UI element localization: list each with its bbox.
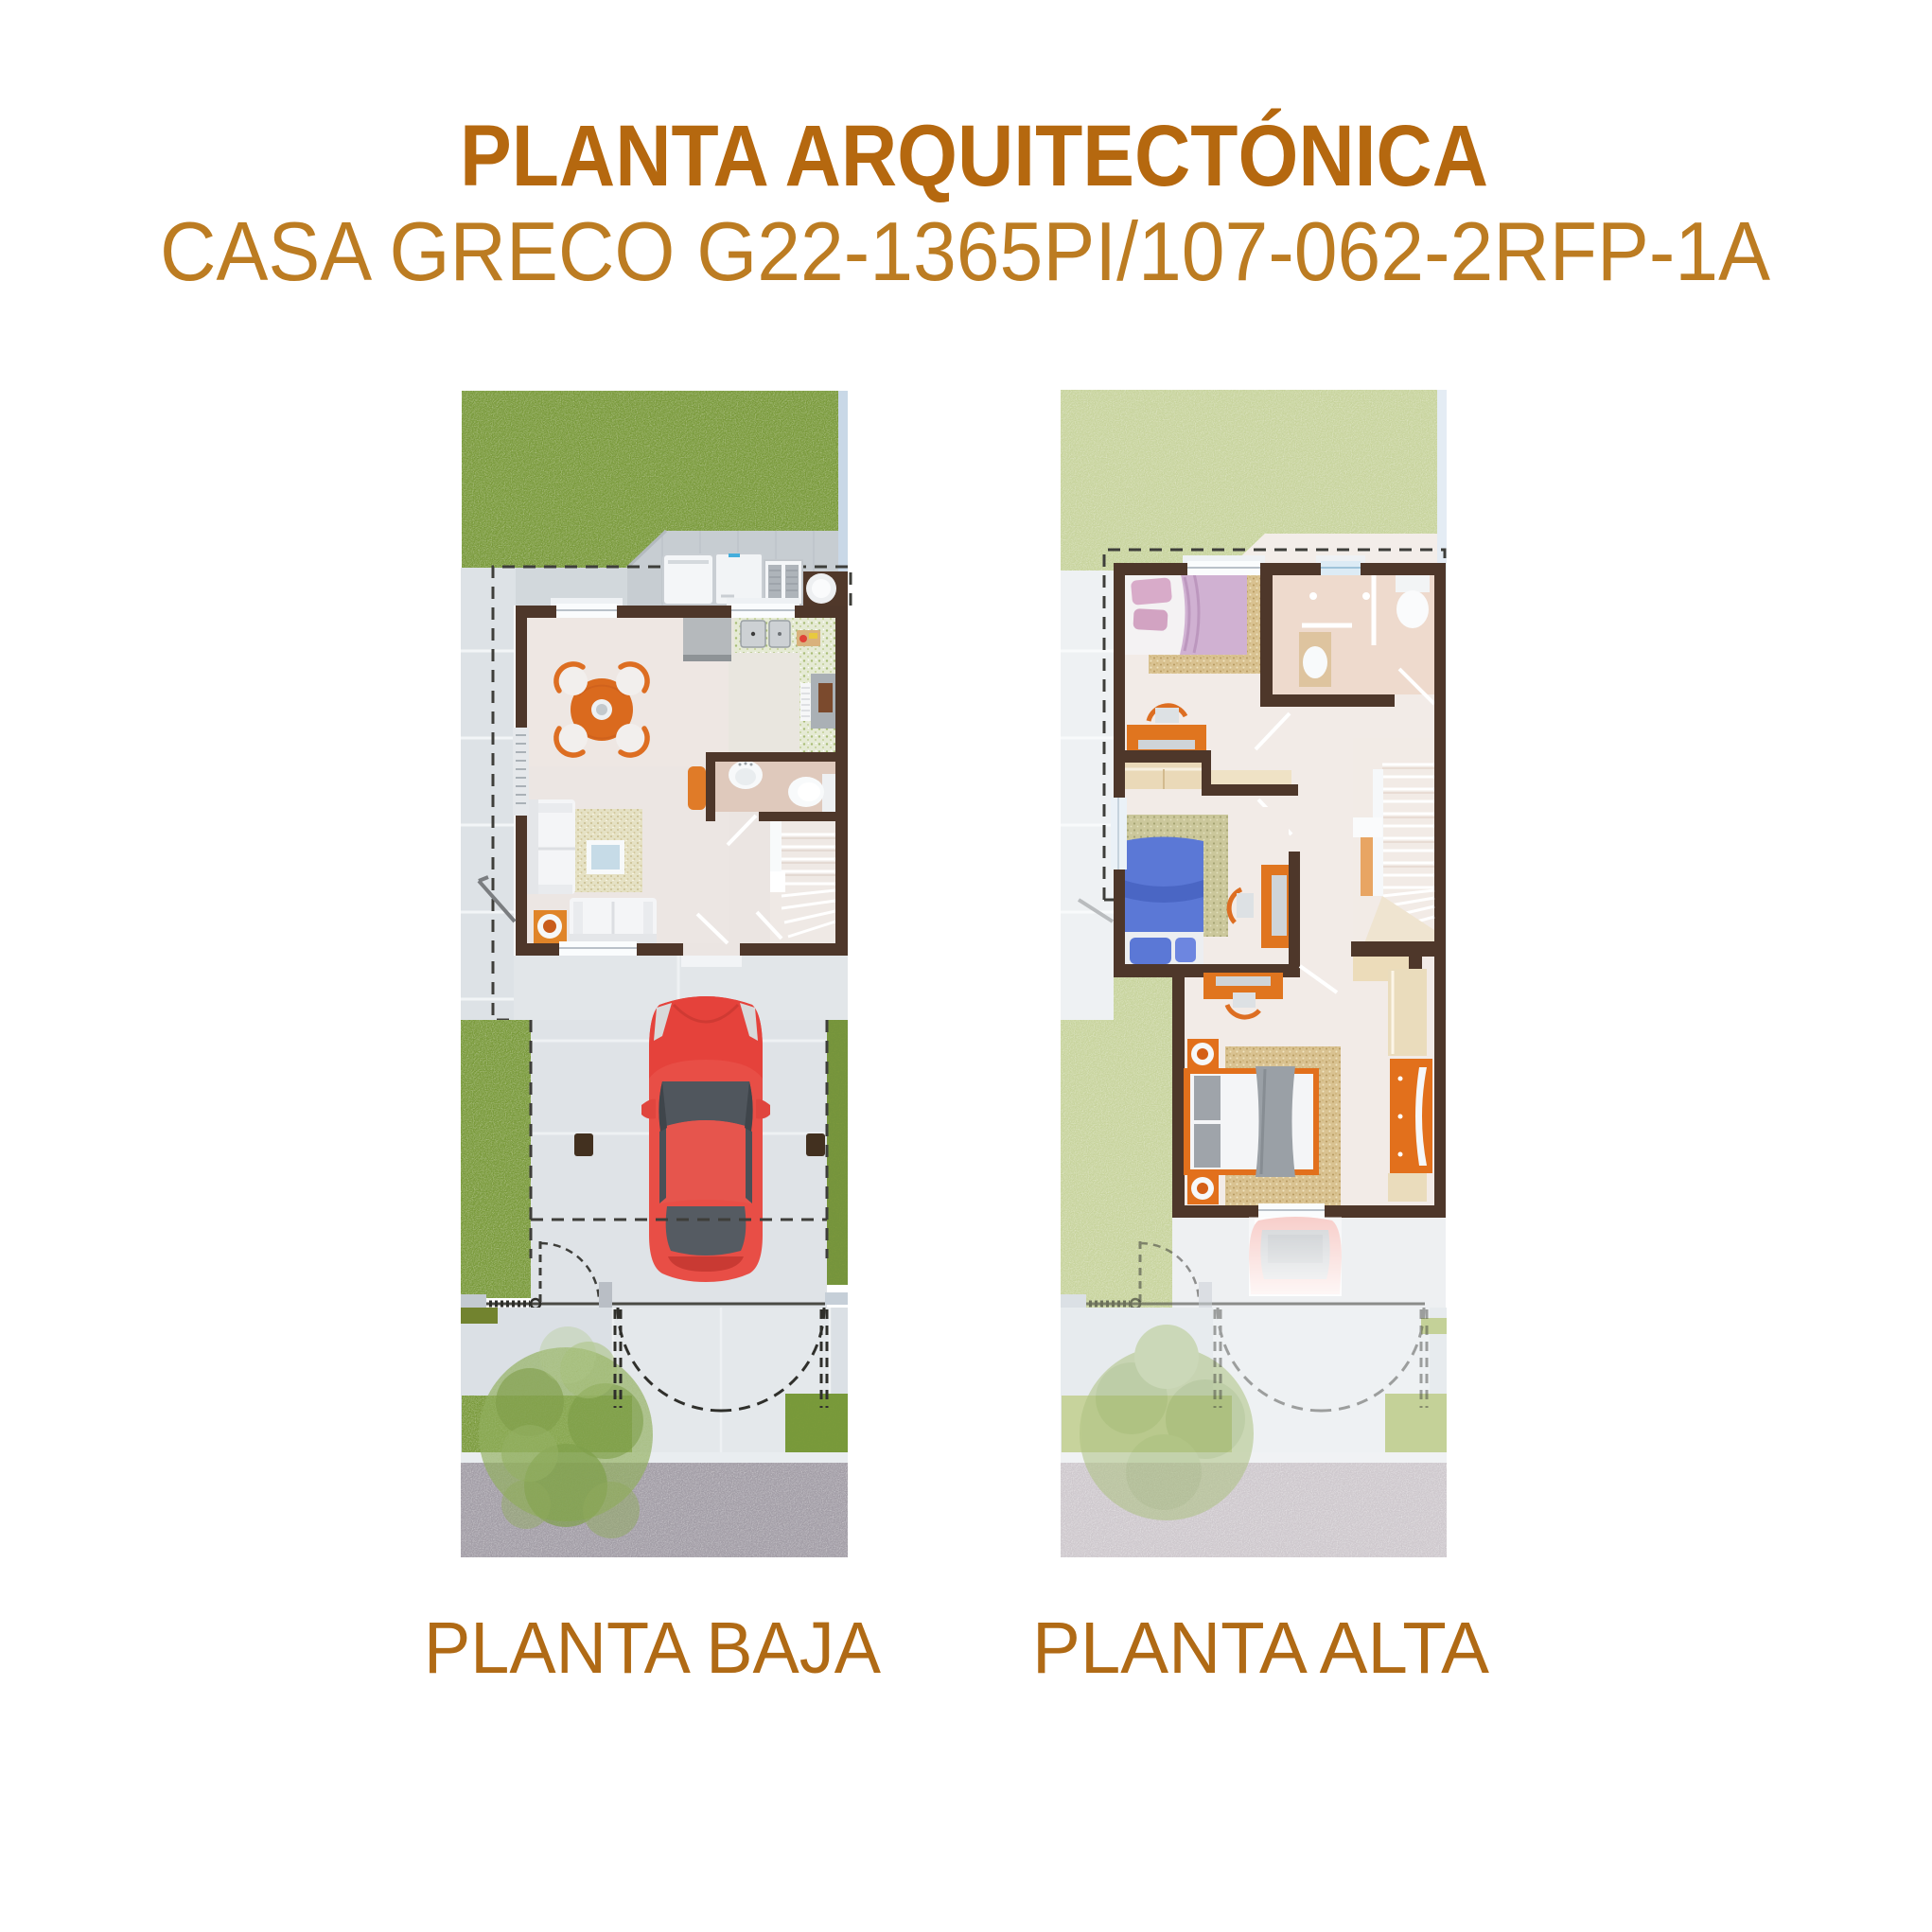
svg-text:PLANTA ALTA: PLANTA ALTA <box>1032 1607 1490 1689</box>
svg-text:CASA GRECO G22-1365PI/107-062-: CASA GRECO G22-1365PI/107-062-2RFP-1A <box>160 204 1770 298</box>
svg-text:PLANTA BAJA: PLANTA BAJA <box>424 1607 882 1689</box>
svg-text:PLANTA ARQUITECTÓNICA: PLANTA ARQUITECTÓNICA <box>460 107 1488 204</box>
